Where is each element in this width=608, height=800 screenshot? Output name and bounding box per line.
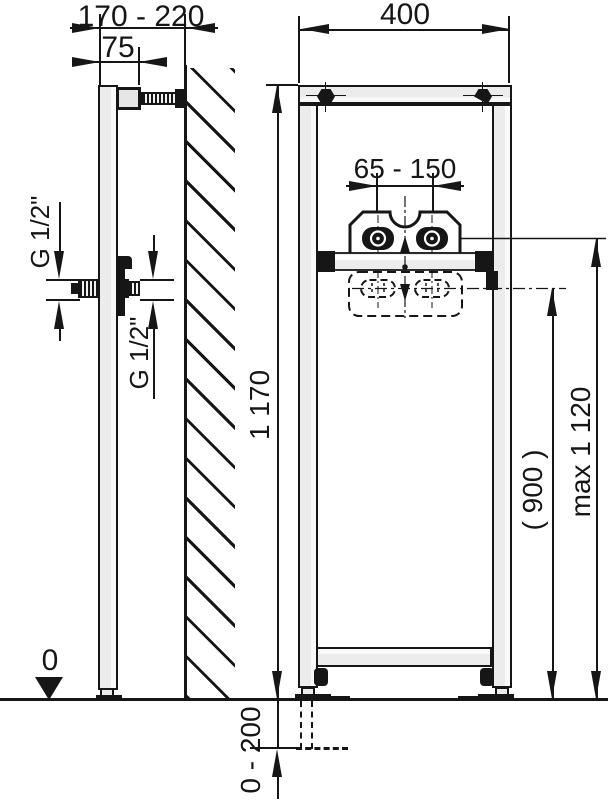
water-fitting-left — [362, 227, 394, 250]
side-threaded-rod — [141, 92, 177, 105]
thread-rear-tick-top — [140, 279, 174, 281]
front-left-post — [298, 85, 318, 688]
leg-lock-knob-left — [314, 668, 328, 686]
thread-front-leader-tail — [59, 329, 61, 341]
dim-frame-height-line — [277, 85, 279, 699]
front-foot-right-base — [478, 694, 514, 700]
dim-wall-distance-ext-right — [184, 14, 186, 65]
dim-max-height-label: max 1 120 — [566, 367, 596, 537]
front-right-post — [492, 85, 512, 688]
center-dot — [402, 264, 408, 270]
dim-arrow-icon — [547, 671, 557, 699]
leg-extension-dashed-right — [311, 701, 313, 749]
dim-arrow-icon — [482, 24, 510, 34]
dim-arrow-icon — [72, 57, 100, 67]
side-rear-plate-top — [117, 256, 132, 269]
dim-arrow-icon — [272, 749, 282, 777]
wall-hatching — [187, 68, 235, 699]
thread-rear-leader — [153, 235, 155, 252]
thread-front-arrow-down-icon — [54, 251, 64, 279]
dim-arrow-icon — [272, 671, 282, 699]
adjust-arrow-down-icon — [400, 284, 410, 301]
dim-arrow-icon — [591, 671, 601, 699]
dim-alt-height-label: ( 900 ) — [518, 425, 548, 555]
dim-arrow-icon — [301, 24, 329, 34]
crossbar-clamp-right — [475, 251, 492, 272]
crossbar-clamp-left — [318, 251, 335, 272]
side-top-bracket — [116, 87, 141, 110]
technical-drawing-canvas: G 1/2" G 1/2" 170 - 220 75 400 65 - 150 … — [0, 0, 608, 800]
dim-frame-width-line — [300, 29, 510, 31]
thread-front-arrow-up-icon — [54, 301, 64, 329]
dim-leg-range-label: 0 - 200 — [236, 700, 266, 800]
dim-arrow-icon — [72, 23, 100, 33]
thread-front-label: G 1/2" — [25, 186, 55, 278]
side-front-fitting-stem — [71, 283, 78, 294]
front-lower-crossbar — [316, 647, 492, 667]
dim-frame-width-label: 400 — [352, 0, 458, 30]
thread-rear-label: G 1/2" — [124, 307, 154, 399]
floor-level-marker-icon — [35, 677, 63, 700]
side-wall-anchor — [175, 89, 185, 108]
dim-frame-width-ext-left — [298, 16, 300, 83]
leg-extension-foot-dashed — [296, 747, 348, 750]
thread-front-leader — [59, 202, 61, 252]
thread-front-tick-top — [46, 279, 80, 281]
front-foot-left-base — [295, 694, 331, 700]
dim-frame-height-tick — [266, 84, 298, 86]
dim-frame-height-label: 1 170 — [245, 345, 275, 465]
dim-arrow-icon — [139, 57, 167, 67]
dim-tap-spacing-label: 65 - 150 — [338, 155, 472, 183]
water-fitting-right — [416, 227, 448, 250]
dim-alt-height-line — [552, 288, 554, 699]
leg-extension-dashed-left — [300, 701, 302, 749]
crossbar-clamp-step — [486, 271, 498, 290]
dim-arrow-icon — [187, 23, 215, 33]
dim-leg-range-line — [277, 701, 279, 748]
dim-arrow-icon — [272, 85, 282, 113]
side-frame-post — [98, 85, 118, 690]
tap-fittings-assembly — [300, 188, 608, 330]
leg-lock-knob-right — [480, 668, 494, 686]
thread-rear-arrow-down-icon — [148, 251, 158, 279]
dim-leg-range-tail — [277, 777, 279, 799]
floor-level-label: 0 — [36, 646, 64, 676]
side-front-water-fitting — [78, 279, 99, 298]
side-rear-water-fitting — [128, 281, 140, 296]
